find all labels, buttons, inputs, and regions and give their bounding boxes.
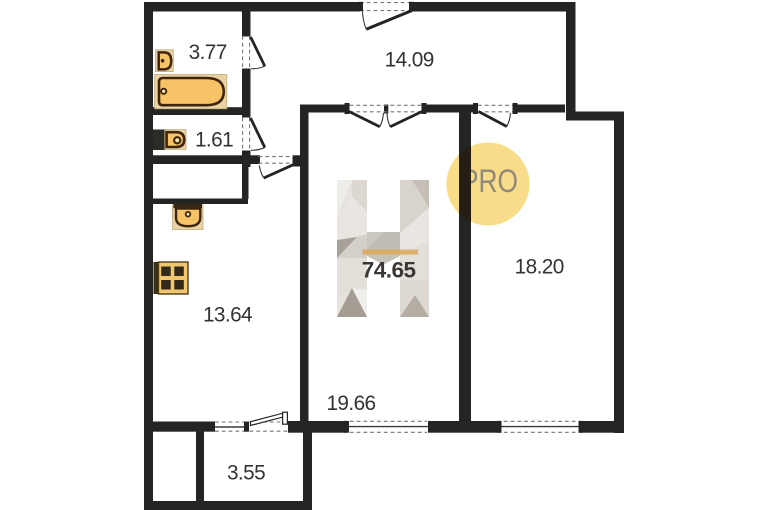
svg-text:14.09: 14.09 <box>385 48 434 71</box>
svg-text:19.66: 19.66 <box>326 392 375 415</box>
svg-text:1.61: 1.61 <box>195 128 233 151</box>
svg-text:PRO: PRO <box>461 163 518 199</box>
svg-text:13.64: 13.64 <box>203 304 252 327</box>
svg-text:18.20: 18.20 <box>515 256 564 279</box>
svg-text:74.65: 74.65 <box>362 258 416 283</box>
svg-text:3.77: 3.77 <box>189 41 227 64</box>
svg-text:3.55: 3.55 <box>227 462 265 485</box>
